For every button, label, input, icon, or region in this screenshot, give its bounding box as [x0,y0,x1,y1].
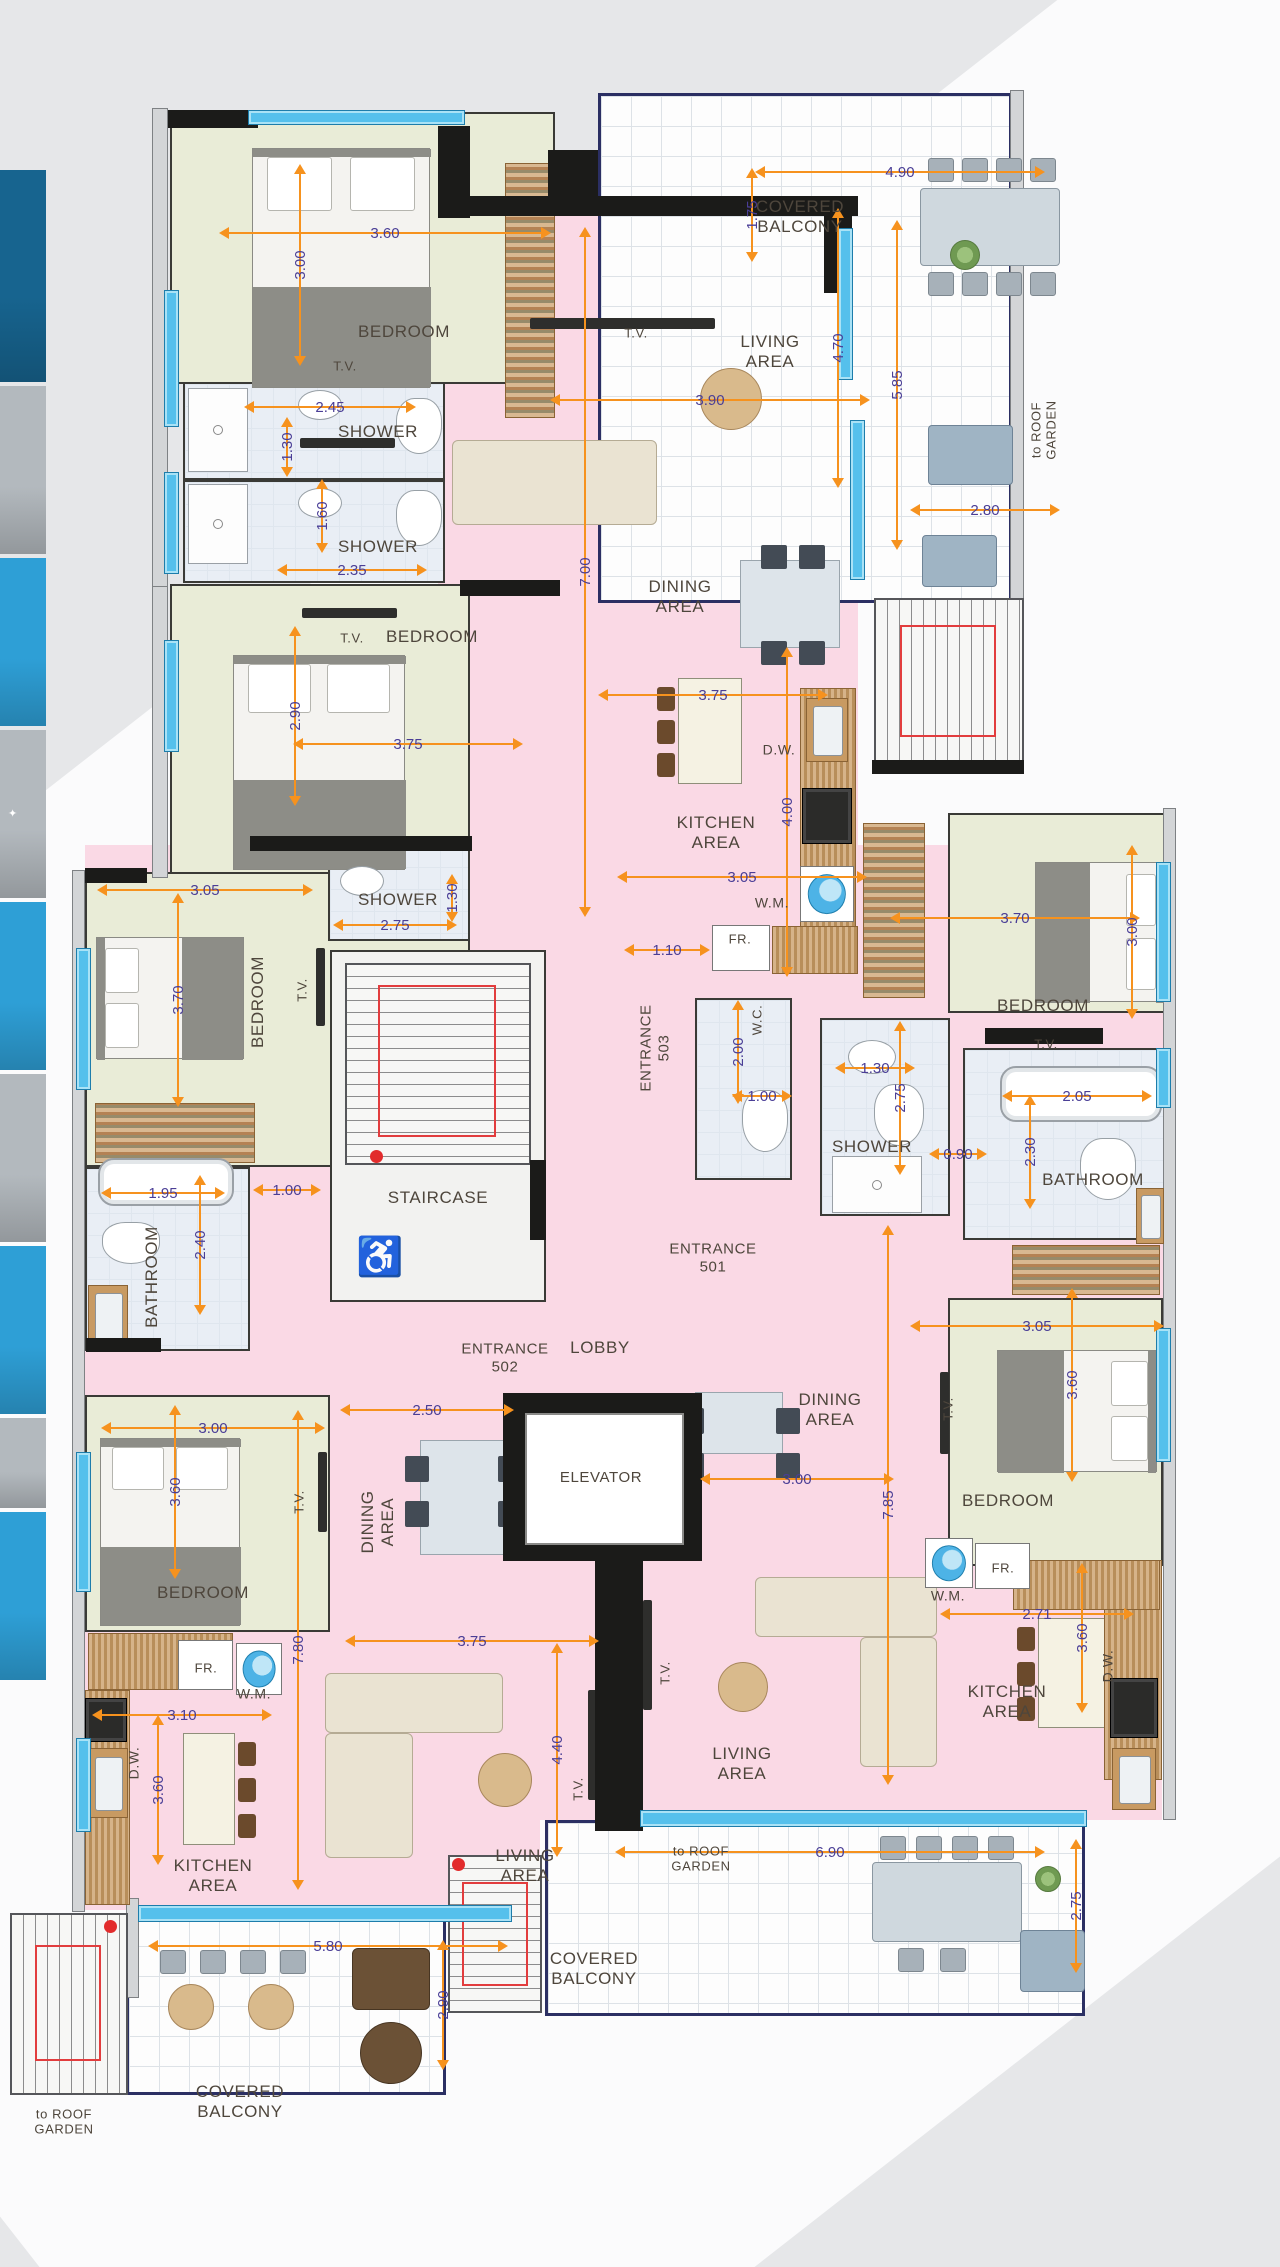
label-shower: SHOWER [338,537,418,557]
label-bedroom: BEDROOM [157,1583,249,1603]
label-fr.: FR. [195,1660,218,1675]
stair-start-dot [104,1920,117,1933]
label-dining-area: DINING AREA [648,577,711,617]
dining-table-furniture [420,1440,505,1555]
sidebar-floor-button[interactable] [0,1418,46,1508]
window [76,1452,91,1592]
label-living-area: LIVING AREA [740,332,799,372]
sofa-furniture [452,440,657,525]
dining-table-furniture [740,560,840,648]
label-entrance-502: ENTRANCE 502 [461,1340,548,1375]
floor-selector-sidebar: ✦ [0,170,46,1684]
dimension-1.10: 1.10 [625,941,709,959]
sofa-furniture [860,1637,937,1767]
stair-rail [35,1945,101,2061]
dimension-3.70: 3.70 [891,909,1139,927]
dimension-2.75: 2.75 [334,916,456,934]
room-shaft-wall [595,1561,643,1831]
dimension-4.00: 4.00 [778,648,796,976]
label-kitchen-area: KITCHEN AREA [677,813,756,853]
tv-furniture [643,1600,652,1710]
patio-chair-furniture [1030,272,1056,296]
patio-table-furniture [360,2022,422,2084]
label-covered-balcony: COVERED BALCONY [756,197,844,237]
tv-furniture [302,608,397,618]
stair-start-dot [452,1858,465,1871]
patio-chair-furniture [898,1948,924,1972]
window [164,472,179,574]
dimension-2.90: 2.90 [434,1941,452,2069]
patio-chair-furniture [962,272,988,296]
wall-black [168,110,258,128]
window [164,640,179,752]
label-fr.: FR. [992,1560,1015,1575]
dimension-3.10: 3.10 [93,1706,271,1724]
label-shower: SHOWER [358,890,438,910]
label-shower: SHOWER [338,422,418,442]
dimension-7.00: 7.00 [576,228,594,916]
label-elevator: ELEVATOR [560,1469,642,1487]
dimension-3.00: 3.00 [291,165,309,365]
basin-furniture [1136,1188,1164,1244]
dimension-3.05: 3.05 [618,868,866,886]
label-d.w.: D.W. [1100,1650,1117,1683]
wardrobe-furniture [1012,1245,1160,1295]
label-w.c.: W.C. [749,1005,764,1036]
label-w.m.: W.M. [755,895,789,912]
label-covered-balcony: COVERED BALCONY [550,1949,638,1989]
dimension-3.60: 3.60 [1073,1564,1091,1712]
label-bedroom: BEDROOM [386,627,478,647]
stair-rail [900,625,996,737]
wardrobe-furniture [95,1103,255,1163]
patio-table-furniture [872,1862,1022,1942]
sidebar-floor-button[interactable] [0,1074,46,1242]
label-t.v.: T.V. [570,1777,585,1801]
label-to-roof-garden: to ROOF GARDEN [1029,400,1060,459]
dimension-5.85: 5.85 [888,221,906,549]
sidebar-floor-button[interactable] [0,558,46,726]
stove-furniture [802,788,852,844]
dimension-2.50: 2.50 [341,1401,513,1419]
lounge-furniture [928,425,1013,485]
dimension-0.90: 0.90 [930,1145,986,1163]
dimension-2.35: 2.35 [278,561,426,579]
label-entrance-501: ENTRANCE 501 [669,1240,756,1275]
dimension-1.30: 1.30 [443,875,461,921]
sidebar-floor-button[interactable] [0,386,46,554]
dimension-3.00: 3.00 [701,1470,893,1488]
label-t.v.: T.V. [1034,1036,1058,1051]
window [640,1810,1087,1827]
wall-black [250,836,472,851]
dimension-2.71: 2.71 [941,1605,1133,1623]
label-fr.: FR. [729,931,752,946]
tv-furniture [530,318,715,329]
dimension-2.90: 2.90 [286,627,304,805]
stove-furniture [1110,1678,1158,1738]
sofa-furniture [325,1673,503,1733]
dimension-3.75: 3.75 [294,735,522,753]
label-shower: SHOWER [832,1137,912,1157]
dimension-7.80: 7.80 [289,1411,307,1889]
label-t.v.: T.V. [291,1490,306,1514]
label-d.w.: D.W. [763,742,796,759]
label-t.v.: T.V. [340,630,364,645]
tv-furniture [318,1452,327,1532]
dimension-3.60: 3.60 [166,1406,184,1578]
sidebar-floor-button[interactable] [0,1512,46,1680]
wall-black [872,760,1024,774]
window [164,290,179,427]
floor-plan-page: ✦ 3.603.002.451.302.351.602.903.757.003.… [0,0,1280,2267]
dimension-5.80: 5.80 [149,1937,507,1955]
dimension-3.90: 3.90 [551,391,869,409]
label-bedroom: BEDROOM [358,322,450,342]
dimension-1.00: 1.00 [254,1181,320,1199]
label-t.v.: T.V. [333,358,357,373]
kitchen-sink-furniture [1112,1748,1156,1810]
dimension-2.40: 2.40 [191,1176,209,1314]
label-w.m.: W.M. [931,1588,965,1605]
window [76,948,91,1090]
kitchen-sink-furniture [806,698,848,762]
lounge-furniture [922,535,997,587]
bed-furniture [1035,862,1165,1002]
shower-tray-furniture [188,484,248,564]
label-entrance-503: ENTRANCE 503 [637,1004,672,1091]
label-t.v.: T.V. [624,325,648,340]
sidebar-floor-button[interactable] [0,170,46,382]
wall-black [86,1338,161,1352]
label-bedroom: BEDROOM [997,996,1089,1016]
label-t.v.: T.V. [940,1397,955,1421]
label-bathroom: BATHROOM [142,1226,162,1328]
label-covered-balcony: COVERED BALCONY [196,2082,284,2122]
sofa-furniture [755,1577,937,1637]
dimension-2.30: 2.30 [1021,1096,1039,1208]
coffee-table-furniture [478,1753,532,1807]
dimension-3.00: 3.00 [1123,846,1141,1018]
window [138,1905,512,1922]
label-living-area: LIVING AREA [495,1846,554,1886]
bed-furniture [252,148,430,388]
label-dining-area: DINING AREA [358,1490,398,1553]
patio-chair-furniture [996,272,1022,296]
kitchen-island-furniture [183,1733,235,1845]
dimension-3.05: 3.05 [98,881,312,899]
label-dining-area: DINING AREA [798,1390,861,1430]
window [248,110,465,125]
label-t.v.: T.V. [294,978,309,1002]
label-w.m.: W.M. [237,1686,271,1703]
dimension-1.00: 1.00 [733,1087,791,1105]
window [1156,1328,1171,1462]
label-to-roof-garden: to ROOF GARDEN [34,2107,93,2138]
label-♿: ♿ [356,1236,404,1281]
wall-black [530,1160,546,1240]
wall-black [460,580,560,596]
tv-furniture [316,948,325,1026]
sofa-furniture [325,1733,413,1858]
patio-table-furniture [168,1984,214,2030]
dimension-3.60: 3.60 [1063,1289,1081,1481]
stair-rail [462,1882,528,1986]
window [76,1738,91,1832]
lounge-chair-furniture [352,1948,430,2010]
label-lobby: LOBBY [570,1338,630,1358]
washing-machine-furniture [925,1538,973,1588]
stair-rail [378,985,496,1137]
dimension-3.70: 3.70 [169,894,187,1106]
label-kitchen-area: KITCHEN AREA [174,1856,253,1896]
coffee-table-furniture [718,1662,768,1712]
patio-chair-furniture [928,272,954,296]
label-bedroom: BEDROOM [248,956,268,1048]
dimension-3.60: 3.60 [149,1716,167,1864]
sidebar-floor-button[interactable]: ✦ [0,730,46,898]
window [1156,862,1171,1002]
dimension-4.70: 4.70 [829,209,847,487]
sidebar-button-icon: ✦ [8,808,20,820]
patio-table-furniture [920,188,1060,266]
dimension-4.90: 4.90 [756,163,1044,181]
label-t.v.: T.V. [657,1661,672,1685]
kitchen-island-furniture [1038,1618,1106,1728]
label-to-roof-garden: to ROOF GARDEN [671,1844,730,1875]
dimension-4.40: 4.40 [548,1644,566,1856]
dimension-1.30: 1.30 [278,418,296,476]
patio-chair-furniture [940,1948,966,1972]
label-staircase: STAIRCASE [388,1188,489,1208]
sidebar-floor-button[interactable] [0,902,46,1070]
label-d.w.: D.W. [126,1747,143,1780]
label-kitchen-area: KITCHEN AREA [968,1682,1047,1722]
label-living-area: LIVING AREA [712,1744,771,1784]
kitchen-sink-furniture [88,1748,128,1818]
label-bathroom: BATHROOM [1042,1170,1144,1190]
shower-tray-furniture [188,388,248,472]
dimension-2.75: 2.75 [1067,1840,1085,1972]
dimension-2.80: 2.80 [911,501,1059,519]
patio-table-furniture [248,1984,294,2030]
plant-furniture [1035,1866,1061,1892]
dimension-1.60: 1.60 [313,480,331,552]
dining-table-furniture [695,1392,783,1454]
dimension-7.85: 7.85 [879,1226,897,1784]
window [1156,1048,1171,1108]
stair-start-dot [370,1150,383,1163]
sidebar-floor-button[interactable] [0,1246,46,1414]
dimension-3.05: 3.05 [911,1317,1163,1335]
dimension-2.45: 2.45 [245,398,415,416]
plant-furniture [950,240,980,270]
dimension-3.60: 3.60 [220,224,550,242]
label-bedroom: BEDROOM [962,1491,1054,1511]
window [850,420,865,580]
